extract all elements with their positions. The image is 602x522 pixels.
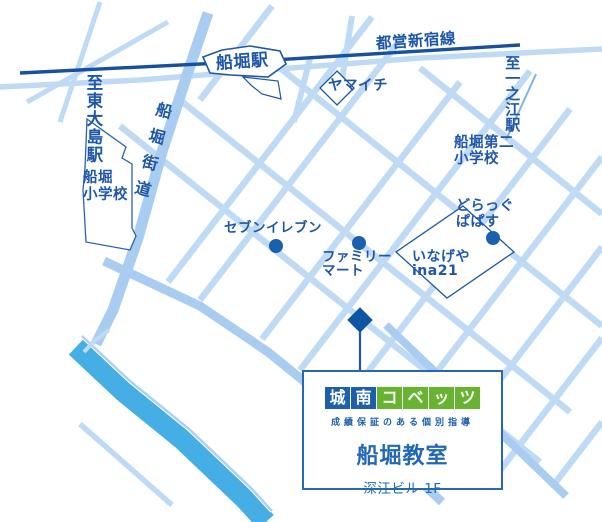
poi-dot-seven-eleven [269,239,283,253]
map-canvas: 都営新宿線 船堀駅 至東大島駅 至一之江駅 船堀街道 ヤマイチ 船堀 小学校 船… [0,0,602,522]
poi-label-funabori-elementary-1: 船堀 [83,171,113,187]
poi-label-seven-eleven: セブンイレブン [224,221,322,236]
poi-label-funabori-elementary-2: 小学校 [83,188,128,204]
direction-label-ichinoe: 至一之江駅 [504,55,520,133]
poi-label-drug-papas-1: どらっぐ [456,199,514,214]
poi-label-yamaichi: ヤマイチ [328,79,388,95]
poi-label-family-mart-2: マート [322,264,364,279]
logo-char-ttsu: ッ [429,387,454,409]
logo-char-jo: 城 [325,387,350,409]
logo-char-ko: コ [377,387,402,409]
classroom-name: 船堀教室 [356,438,448,470]
poi-label-funabori-daini-1: 船堀第二 [454,136,514,152]
poi-dot-family-mart [352,236,366,250]
poi-label-funabori-daini-2: 小学校 [454,152,499,168]
direction-label-higashi-ojima: 至東大島駅 [84,74,102,164]
johnan-kobetsu-logo: 城 南 コ ベ ッ ツ [325,387,480,409]
logo-char-be: ベ [403,387,428,409]
station-label: 船堀駅 [215,51,269,73]
poi-dot-drug-papas [486,231,500,245]
poi-label-drug-papas-2: ぱぱす [456,215,500,230]
station-building-outline [243,77,281,99]
logo-char-nan: 南 [351,387,376,409]
logo-tagline: 成績保証のある個別指導 [331,415,474,428]
school-callout-box: 城 南 コ ベ ッ ツ 成績保証のある個別指導 船堀教室 深江ビル 1F [302,370,503,490]
logo-char-tsu: ツ [455,387,480,409]
poi-label-inageya-2: ina21 [412,264,458,279]
classroom-address: 深江ビル 1F [363,477,441,497]
river [76,330,272,522]
